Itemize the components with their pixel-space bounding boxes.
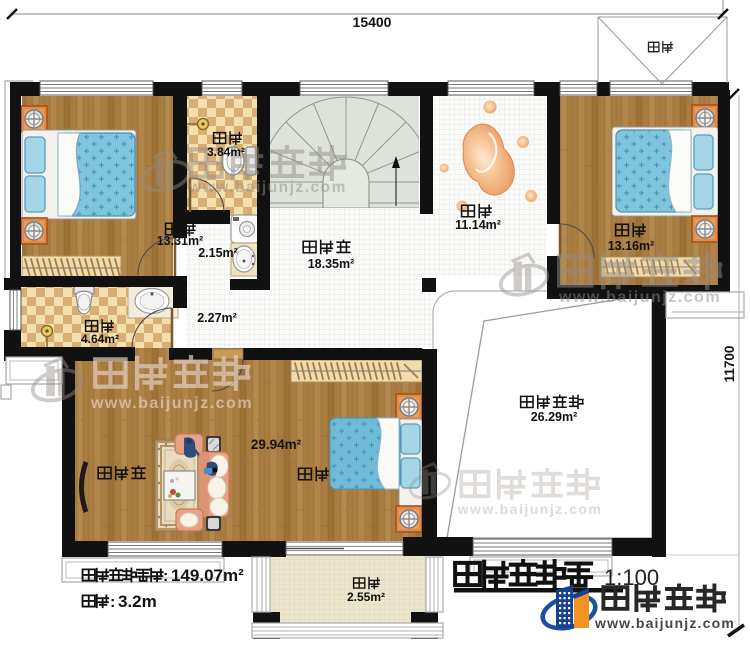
- svg-text:18.35m²: 18.35m²: [308, 257, 355, 271]
- svg-text:11700: 11700: [722, 346, 737, 383]
- svg-text:www.baijunjz.com: www.baijunjz.com: [90, 395, 253, 412]
- svg-text:26.29m²: 26.29m²: [531, 410, 578, 424]
- svg-text::: :: [163, 568, 168, 585]
- svg-text:www.baijunjz.com: www.baijunjz.com: [558, 289, 721, 306]
- svg-text:15400: 15400: [353, 14, 392, 30]
- svg-text:4.64m²: 4.64m²: [81, 332, 119, 346]
- svg-text:www.baijunjz.com: www.baijunjz.com: [457, 501, 603, 517]
- svg-text:www.baijunjz.com: www.baijunjz.com: [594, 615, 735, 631]
- svg-text:29.94m²: 29.94m²: [251, 437, 302, 452]
- svg-text:2.55m²: 2.55m²: [347, 590, 385, 604]
- svg-text:11.14m²: 11.14m²: [455, 218, 501, 232]
- svg-text:13.31m²: 13.31m²: [157, 234, 204, 248]
- svg-text:2.27m²: 2.27m²: [197, 311, 237, 325]
- svg-text:13.16m²: 13.16m²: [608, 239, 655, 253]
- svg-text:149.07m²: 149.07m²: [171, 566, 244, 585]
- svg-text:3.84m²: 3.84m²: [207, 145, 245, 159]
- svg-text:2.15m²: 2.15m²: [198, 246, 238, 260]
- svg-text:3.2m: 3.2m: [118, 592, 157, 611]
- svg-text::: :: [110, 594, 115, 611]
- svg-text:www.baijunjz.com: www.baijunjz.com: [188, 179, 347, 196]
